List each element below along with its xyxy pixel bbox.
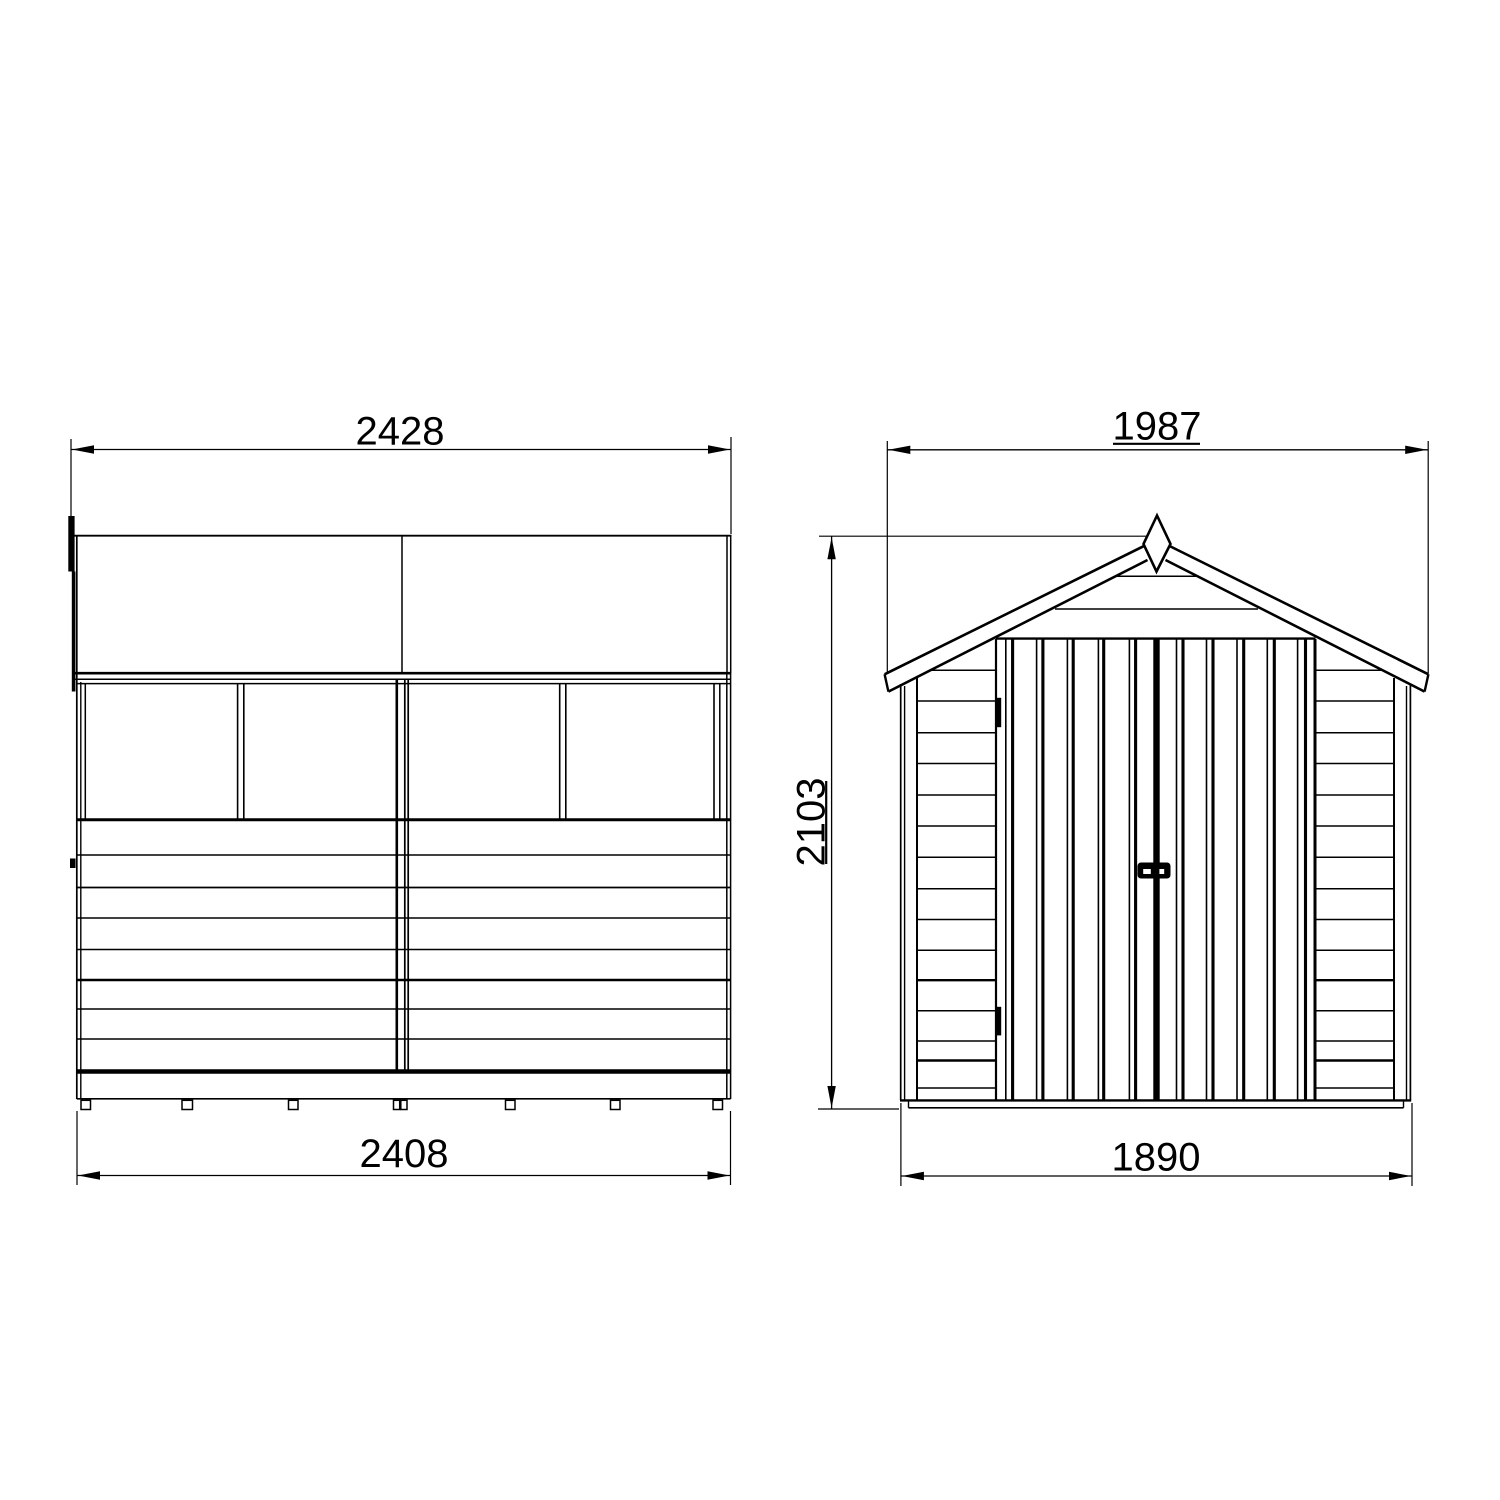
svg-text:2428: 2428 bbox=[356, 410, 445, 454]
svg-text:1890: 1890 bbox=[1112, 1136, 1201, 1180]
svg-text:1987: 1987 bbox=[1113, 405, 1202, 449]
svg-text:2408: 2408 bbox=[360, 1132, 449, 1176]
